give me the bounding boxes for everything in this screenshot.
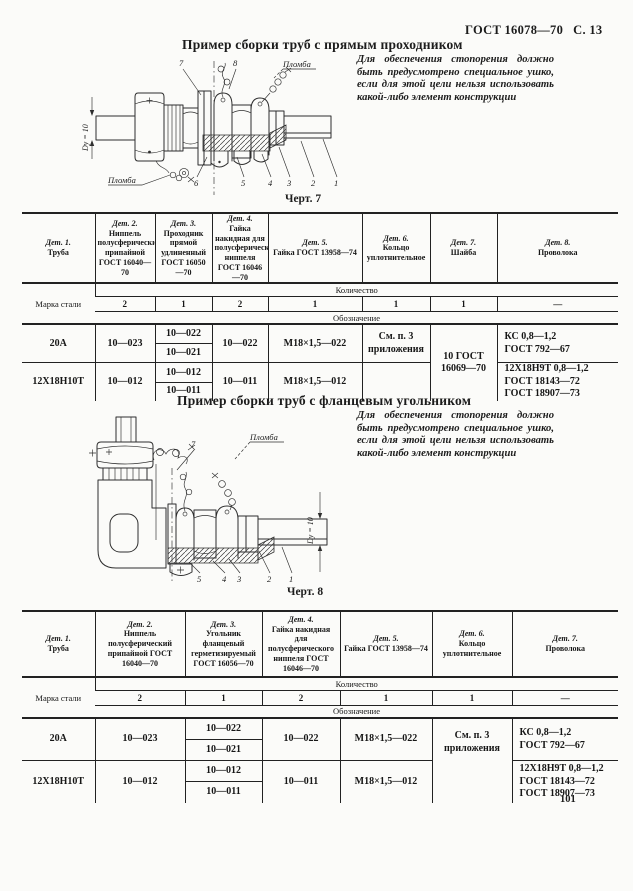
- table-row: 12Х18Н10Т 10—012 10—01210—011 10—011 М18…: [22, 761, 618, 803]
- column-header-det5: Дет. 5.Гайка ГОСТ 13958—74: [268, 213, 362, 283]
- part-number-6: 6: [194, 178, 199, 188]
- figure7-caption: Черт. 7: [285, 193, 321, 205]
- cell-det5: М18×1,5—022: [340, 718, 432, 761]
- cell-det6: См. п. 3 приложения: [362, 324, 430, 363]
- quantity-value: —: [512, 690, 618, 705]
- step-coupling: [238, 516, 258, 552]
- diameter-dimension-label: Dу = 10: [306, 517, 315, 545]
- pipe-assembly-drawing-straight-union: Dу = 10: [80, 55, 355, 197]
- quantity-band-row: Марка стали Количество: [22, 283, 618, 296]
- left-pipe: [96, 116, 135, 140]
- quantity-value: 1: [340, 690, 432, 705]
- quantity-value: 2: [262, 690, 340, 705]
- cutaway-hatch: [203, 135, 270, 151]
- designation-label: Обозначение: [95, 311, 618, 324]
- seal-label-top: Пломба: [282, 59, 311, 69]
- part-number-3: 3: [286, 178, 291, 188]
- quantity-value: 1: [268, 296, 362, 311]
- table-row: 20А 10—023 10—02210—021 10—022 М18×1,5—0…: [22, 718, 618, 761]
- designation-band-row: Обозначение: [22, 705, 618, 718]
- cell-det8: 12Х18Н9Т 0,8—1,2 ГОСТ 18143—72 ГОСТ 1890…: [497, 363, 618, 401]
- cell-det2: 10—023: [95, 324, 155, 363]
- document-header: ГОСТ 16078—70С. 13: [465, 23, 602, 38]
- column-header-det1: Дет. 1.Труба: [22, 213, 95, 283]
- cell-det3-stacked: 10—01210—011: [185, 761, 262, 803]
- part-number-2: 2: [267, 574, 272, 584]
- cell-steel: 12Х18Н10Т: [22, 363, 95, 401]
- steel-grade-label: Марка стали: [22, 283, 95, 324]
- elbow-window: [110, 514, 138, 552]
- table-header-row: Дет. 1.Труба Дет. 2.Ниппель полусферичес…: [22, 611, 618, 677]
- cell-det4: 10—022: [262, 718, 340, 761]
- table-chert7: Дет. 1.Труба Дет. 2.Ниппель полусферичес…: [22, 212, 618, 401]
- quantity-value: 1: [362, 296, 430, 311]
- column-header-det2: Дет. 2.Ниппель полусферический припайной…: [95, 611, 185, 677]
- part-number-3: 3: [236, 574, 241, 584]
- document-page: ГОСТ 16078—70С. 13 Пример сборки труб с …: [0, 0, 633, 891]
- quantity-value: 1: [430, 296, 497, 311]
- quantity-values-row: 2 1 2 1 1 —: [22, 690, 618, 705]
- column-header-det4: Дет. 4.Гайка накидная для полусферическо…: [212, 213, 268, 283]
- cell-det5: М18×1,5—022: [268, 324, 362, 363]
- cutaway-hatch: [168, 548, 258, 563]
- column-header-det7: Дет. 7.Проволока: [512, 611, 618, 677]
- steel-grade-label: Марка стали: [22, 677, 95, 718]
- cell-det2: 10—012: [95, 761, 185, 803]
- flange-disc: [198, 91, 211, 165]
- quantity-value: 1: [185, 690, 262, 705]
- quantity-label: Количество: [95, 283, 618, 296]
- cell-det7-merged: 10 ГОСТ 16069—70: [430, 324, 497, 401]
- part-number-5: 5: [241, 178, 245, 188]
- coupling-nut: [183, 108, 198, 148]
- part-number-4: 4: [222, 574, 227, 584]
- quantity-value: 2: [212, 296, 268, 311]
- page-reference: С. 13: [573, 23, 602, 37]
- cell-det7: КС 0,8—1,2 ГОСТ 792—67: [512, 718, 618, 761]
- right-pipe: [284, 116, 331, 138]
- cell-steel: 20А: [22, 324, 95, 363]
- lead-seal: [179, 168, 188, 177]
- cell-det5: М18×1,5—012: [340, 761, 432, 803]
- designation-band-row: Обозначение: [22, 311, 618, 324]
- part-number-1: 1: [334, 178, 338, 188]
- seal-label: Пломба: [249, 432, 278, 442]
- page-number: 101: [560, 794, 576, 805]
- cell-det4: 10—011: [262, 761, 340, 803]
- table-chert8: Дет. 1.Труба Дет. 2.Ниппель полусферичес…: [22, 610, 618, 803]
- cell-det8: КС 0,8—1,2 ГОСТ 792—67: [497, 324, 618, 363]
- cell-det2: 10—023: [95, 718, 185, 761]
- part-number-1: 1: [289, 574, 293, 584]
- designation-label: Обозначение: [95, 705, 618, 718]
- part-number-4: 4: [268, 178, 273, 188]
- quantity-label: Количество: [95, 677, 618, 690]
- section1-note: Для обеспечения стопорения должно быть п…: [357, 54, 554, 104]
- column-header-det6: Дет. 6.Кольцо уплотнительное: [362, 213, 430, 283]
- quantity-value: 2: [95, 296, 155, 311]
- quantity-values-row: 2 1 2 1 1 1 —: [22, 296, 618, 311]
- column-header-det3: Дет. 3.Проходник прямой удлиненный ГОСТ …: [155, 213, 212, 283]
- callout-7: 7: [179, 58, 184, 68]
- cell-det2: 10—012: [95, 363, 155, 401]
- standard-number: ГОСТ 16078—70: [465, 23, 563, 37]
- column-header-det7: Дет. 7.Шайба: [430, 213, 497, 283]
- table-header-row: Дет. 1.Труба Дет. 2.Ниппель полусферичес…: [22, 213, 618, 283]
- callout-8: 8: [233, 58, 238, 68]
- vertical-pipe-stub: [116, 417, 136, 442]
- section2-title: Пример сборки труб с фланцевым угольнико…: [177, 393, 471, 409]
- quantity-value: 2: [95, 690, 185, 705]
- table-row: 20А 10—023 10—02210—021 10—022 М18×1,5—0…: [22, 324, 618, 363]
- section2-note: Для обеспечения стопорения должно быть п…: [357, 410, 554, 460]
- quantity-value: 1: [432, 690, 512, 705]
- diameter-dimension-label: Dу = 10: [81, 124, 90, 152]
- seal-label-bottom: Пломба: [107, 175, 136, 185]
- section1-title: Пример сборки труб с прямым проходником: [182, 37, 463, 53]
- cell-det3-stacked: 10—02210—021: [155, 324, 212, 363]
- cell-det6-merged: См. п. 3 приложения: [432, 718, 512, 803]
- quantity-value: —: [497, 296, 618, 311]
- figure8-caption: Черт. 8: [287, 586, 323, 598]
- cell-det3-stacked: 10—02210—021: [185, 718, 262, 761]
- union-rings: [103, 468, 147, 480]
- cell-steel: 20А: [22, 718, 95, 761]
- column-header-det8: Дет. 8.Проволока: [497, 213, 618, 283]
- callout-7: 7: [191, 439, 196, 449]
- quantity-value: 1: [155, 296, 212, 311]
- pipe-assembly-drawing-flanged-elbow: Dу = 10 7 Пломба 5 4 3 2 1: [70, 412, 355, 584]
- column-header-det5: Дет. 5.Гайка ГОСТ 13958—74: [340, 611, 432, 677]
- column-header-det4: Дет. 4.Гайка накидная для полусферическо…: [262, 611, 340, 677]
- column-header-det6: Дет. 6.Кольцо уплотнительное: [432, 611, 512, 677]
- column-header-det3: Дет. 3.Угольник фланцевый герметизируемы…: [185, 611, 262, 677]
- quantity-band-row: Марка стали Количество: [22, 677, 618, 690]
- cell-det4: 10—022: [212, 324, 268, 363]
- column-header-det2: Дет. 2.Ниппель полусферический припайной…: [95, 213, 155, 283]
- column-header-det1: Дет. 1.Труба: [22, 611, 95, 677]
- part-number-2: 2: [311, 178, 316, 188]
- part-number-5: 5: [197, 574, 201, 584]
- cell-steel: 12Х18Н10Т: [22, 761, 95, 803]
